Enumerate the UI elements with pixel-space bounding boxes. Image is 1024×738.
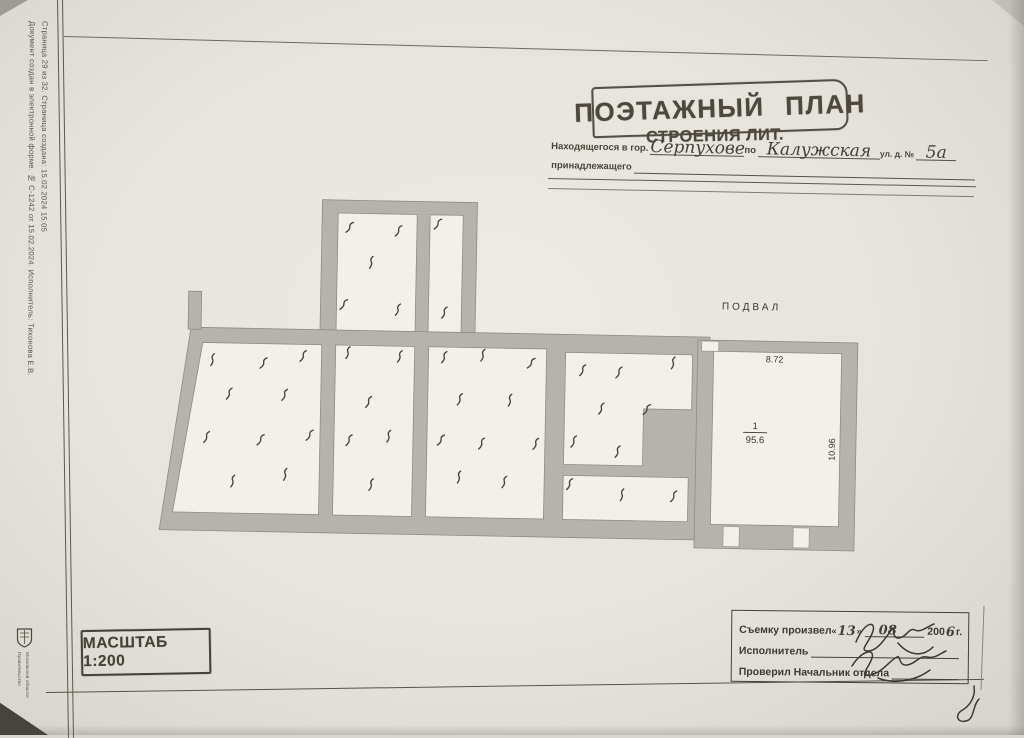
month-handwritten-value: 08 (879, 625, 897, 636)
day-handwritten-value: 13 (838, 626, 856, 637)
room-interiors (172, 210, 844, 527)
survey-row-executor: Исполнитель (739, 636, 962, 659)
height-dimension-label: 10.96 (827, 438, 837, 461)
room-second (332, 345, 414, 516)
survey-signature-box: Съемку произвел « 13 » 08 200 6 г. Испол… (731, 610, 970, 684)
scale-stamp-box: МАСШТАБ 1:200 (81, 628, 212, 676)
wall-left-stub (188, 291, 202, 329)
survey-label: Съемку произвел (739, 624, 832, 637)
executor-label: Исполнитель (739, 645, 809, 658)
room-area-label: 95.6 (746, 435, 765, 446)
month-blank-line: 08 (865, 622, 925, 638)
executor-blank-line (811, 643, 959, 660)
room-number-label: 1 (752, 421, 758, 432)
room-annex-right (428, 215, 463, 333)
floor-label: ПОДВАЛ (722, 301, 782, 313)
checked-blank-line (892, 664, 959, 680)
room-small-bottom (562, 475, 688, 521)
room-basement-1 (710, 351, 841, 526)
year-prefix: 200 (927, 626, 945, 638)
opening-top (702, 341, 719, 351)
year-suffix: г. (956, 626, 962, 638)
opening-bottom-right (793, 528, 809, 548)
room-third (425, 347, 546, 519)
opening-bottom-left (723, 526, 739, 546)
checked-label: Проверил Начальник отдела (739, 666, 889, 680)
scale-stamp-text: МАСШТАБ 1:200 (83, 633, 210, 671)
survey-row-checked: Проверил Начальник отдела (739, 657, 962, 680)
year-handwritten-value: 6 (946, 627, 955, 638)
quote-close: » (857, 626, 862, 637)
width-dimension-label: 8.72 (766, 354, 784, 364)
quote-open: « (831, 626, 836, 637)
survey-row-date: Съемку произвел « 13 » 08 200 6 г. (739, 615, 962, 638)
scanned-floor-plan-document: { "sidebar": { "line1": "Документ создан… (0, 0, 1024, 735)
